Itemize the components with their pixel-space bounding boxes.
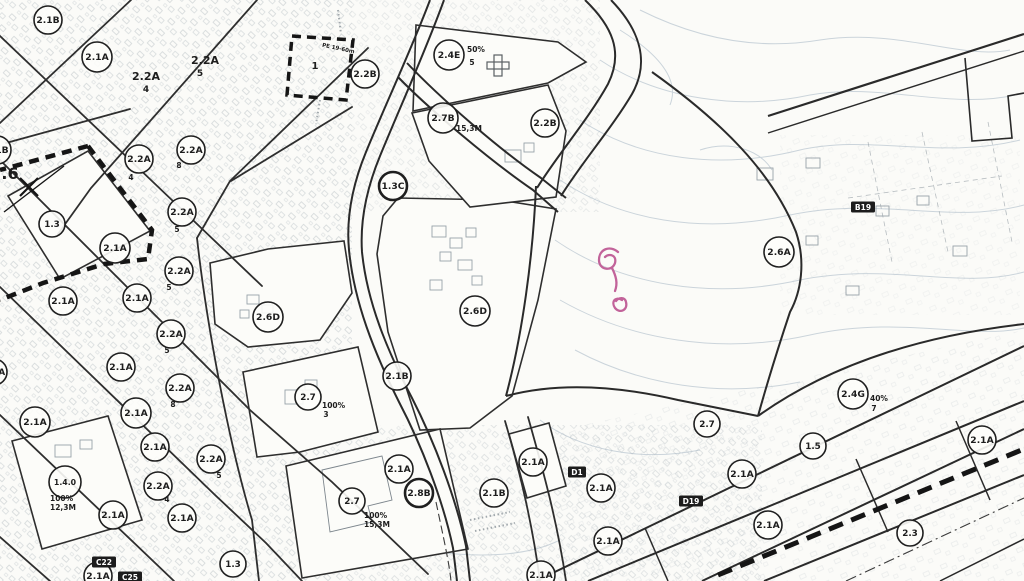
zone-code: 2.2A bbox=[159, 329, 183, 340]
zone-circle-2.1A: 2.1A bbox=[168, 504, 196, 532]
zone-sub-label: 4 bbox=[164, 495, 169, 504]
zone-code: 1.5 bbox=[805, 442, 821, 452]
zone-code: 2.1A bbox=[86, 571, 110, 581]
zone-circle-1.3: 1.3 bbox=[39, 211, 65, 237]
zone-code: 2.3 bbox=[902, 529, 918, 539]
zone-code: 2.1A bbox=[125, 293, 149, 304]
zone-code: 2.1A bbox=[596, 536, 620, 547]
zone-code: 2.1B bbox=[482, 488, 505, 499]
plain-zone-label: 2.2A bbox=[191, 54, 219, 67]
zone-code: 2.6A bbox=[767, 247, 791, 258]
zone-code: 2.6D bbox=[463, 306, 487, 317]
zone-circle-2.2B: 2.2B bbox=[531, 109, 559, 137]
zone-circle-2.3: 2.3 bbox=[897, 520, 923, 546]
zone-code: 2.2A bbox=[168, 383, 192, 394]
zone-circle-2.8B: 2.8B bbox=[405, 479, 433, 507]
zone-sub-label: 5 bbox=[174, 225, 179, 234]
zone-circle-2.1A: 2.1A bbox=[594, 527, 622, 555]
zone-code: 2.1A bbox=[730, 469, 754, 480]
ref-badge-B19: B19 bbox=[851, 202, 875, 213]
zone-circle-2.1A: 2.1A bbox=[20, 407, 50, 437]
zone-code: 2.2A bbox=[146, 481, 170, 492]
zone-code: 2.1B bbox=[36, 15, 59, 26]
zone-sub-label: 5 bbox=[166, 283, 171, 292]
zone-circle-1.3C: 1.3C bbox=[379, 172, 407, 200]
ref-badge-D1: D1 bbox=[568, 467, 586, 478]
zone-code: 2.1A bbox=[387, 464, 411, 475]
zone-sub-label: 8 bbox=[176, 161, 181, 170]
zone-circle-2.6D: 2.6D bbox=[460, 296, 490, 326]
zone-code: 2.1A bbox=[23, 417, 47, 428]
zone-circle-2.1A: 2.1A bbox=[100, 233, 130, 263]
zone-circle-1.5: 1.5 bbox=[800, 433, 826, 459]
zone-sub-label: 15,3M bbox=[364, 520, 390, 529]
ref-badge-C25: C25 bbox=[118, 572, 142, 581]
zone-sub-label: 100% bbox=[364, 511, 388, 520]
zone-code: 2.7 bbox=[699, 420, 715, 430]
zone-sub-label: 40% bbox=[870, 394, 888, 403]
zone-sub-label: 4 bbox=[128, 173, 133, 182]
zone-code: 2.1A bbox=[589, 483, 613, 494]
plain-zone-label: 1 bbox=[312, 61, 319, 72]
zone-circle-2.1A: 2.1A bbox=[728, 460, 756, 488]
plain-zone-label: 4 bbox=[143, 85, 149, 95]
zone-circle-2.2B: 2.2B bbox=[351, 60, 379, 88]
ref-badge-D19: D19 bbox=[679, 496, 703, 507]
zone-code: 2.4G bbox=[841, 389, 865, 400]
plain-zone-label: 5 bbox=[197, 69, 203, 79]
zone-code: 2.4E bbox=[438, 50, 461, 61]
zone-code: 2.2B bbox=[533, 118, 556, 129]
zone-code: 2.7 bbox=[300, 393, 316, 403]
zone-code: 2.1A bbox=[170, 513, 194, 524]
zone-circle-2.1A: 2.1A bbox=[99, 501, 127, 529]
ref-badge-C22: C22 bbox=[92, 557, 116, 568]
zone-code: 2.1A bbox=[143, 442, 167, 453]
zone-sub-label: 15,3M bbox=[456, 124, 482, 133]
plain-zone-label: 2.2A bbox=[132, 70, 160, 83]
zone-sub-label: 100% bbox=[322, 401, 346, 410]
zone-circle-2.1A: 2.1A bbox=[82, 42, 112, 72]
zone-code: 2.2A bbox=[127, 154, 151, 165]
zone-sub-label: 100% bbox=[50, 494, 74, 503]
zone-code: 2.1A bbox=[970, 435, 994, 446]
zone-circle-2.1A: 2.1A bbox=[587, 474, 615, 502]
zone-sub-label: 5 bbox=[216, 471, 221, 480]
badge-code: B19 bbox=[855, 203, 871, 212]
zone-code: 2.8B bbox=[407, 488, 430, 499]
zone-code: 2.2A bbox=[199, 454, 223, 465]
zone-sub-label: 5 bbox=[164, 346, 169, 355]
zone-circle-2.1B: 2.1B bbox=[480, 479, 508, 507]
zone-circle-2.1A: 2.1A bbox=[968, 426, 996, 454]
zone-code: 2.1A bbox=[756, 520, 780, 531]
zone-code: 2.2A bbox=[170, 207, 194, 218]
zone-code: 2.1A bbox=[109, 362, 133, 373]
zone-sub-label: 12,3M bbox=[50, 503, 76, 512]
zone-sub-label: 7 bbox=[871, 404, 876, 413]
zone-code: 2.2A bbox=[179, 145, 203, 156]
zone-sub-label: 5 bbox=[469, 58, 474, 67]
zone-code: 2.1A bbox=[0, 368, 5, 378]
zoning-map-scan: 2.1B2.1A2.2A42.2A82.2A51.32.1A2.2A52.1A2… bbox=[0, 0, 1024, 581]
zone-circle-2.1A: 2.1A bbox=[49, 287, 77, 315]
zone-code: 2.1A bbox=[521, 457, 545, 468]
zone-code: 1.3 bbox=[225, 560, 241, 570]
zone-sub-label: 3 bbox=[323, 410, 328, 419]
zone-code: 2.2A bbox=[167, 266, 191, 277]
zone-code: 1.4.0 bbox=[54, 478, 77, 487]
zone-code: 2.1A bbox=[101, 510, 125, 521]
zoning-map-canvas: 2.1B2.1A2.2A42.2A82.2A51.32.1A2.2A52.1A2… bbox=[0, 0, 1024, 581]
zone-code: 1.3C bbox=[381, 181, 404, 192]
zone-circle-2.1A: 2.1A bbox=[121, 398, 151, 428]
zone-circle-2.6D: 2.6D bbox=[253, 302, 283, 332]
zone-circle-2.1A: 2.1A bbox=[527, 561, 555, 581]
zone-circle-2.6A: 2.6A bbox=[764, 237, 794, 267]
zone-sub-label: 50% bbox=[467, 45, 485, 54]
zone-code: 2.2B bbox=[353, 69, 376, 80]
badge-code: D19 bbox=[683, 497, 700, 506]
zone-code: 2.7B bbox=[431, 113, 454, 124]
zone-code: 2.1B bbox=[0, 145, 9, 156]
zone-circle-1.3: 1.3 bbox=[220, 551, 246, 577]
zone-code: 1.3 bbox=[44, 220, 60, 230]
badge-code: C22 bbox=[96, 558, 112, 567]
zone-circle-2.1A: 2.1A bbox=[123, 284, 151, 312]
zone-circle-2.1A: 2.1A bbox=[385, 455, 413, 483]
zone-circle-2.1A: 2.1A bbox=[519, 448, 547, 476]
zone-code: 2.1A bbox=[85, 52, 109, 63]
zone-code: 2.1A bbox=[529, 570, 553, 581]
zone-code: 2.1B bbox=[385, 371, 408, 382]
zone-code: 2.7 bbox=[344, 497, 360, 507]
zone-circle-2.1A: 2.1A bbox=[754, 511, 782, 539]
badge-code: D1 bbox=[571, 468, 582, 477]
zone-circle-2.1A: 2.1A bbox=[107, 353, 135, 381]
zone-code: 2.1A bbox=[124, 408, 148, 419]
zone-circle-2.1B: 2.1B bbox=[383, 362, 411, 390]
zone-circle-2.7: 2.7 bbox=[694, 411, 720, 437]
zone-circle-2.1B: 2.1B bbox=[34, 6, 62, 34]
zone-code: 2.1A bbox=[51, 296, 75, 307]
zone-code: 2.1A bbox=[103, 243, 127, 254]
zone-circle-2.1A: 2.1A bbox=[141, 433, 169, 461]
badge-code: C25 bbox=[122, 573, 138, 581]
plain-zone-label: .6 bbox=[1, 164, 18, 183]
zone-sub-label: 8 bbox=[170, 400, 175, 409]
zone-code: 2.6D bbox=[256, 312, 280, 323]
